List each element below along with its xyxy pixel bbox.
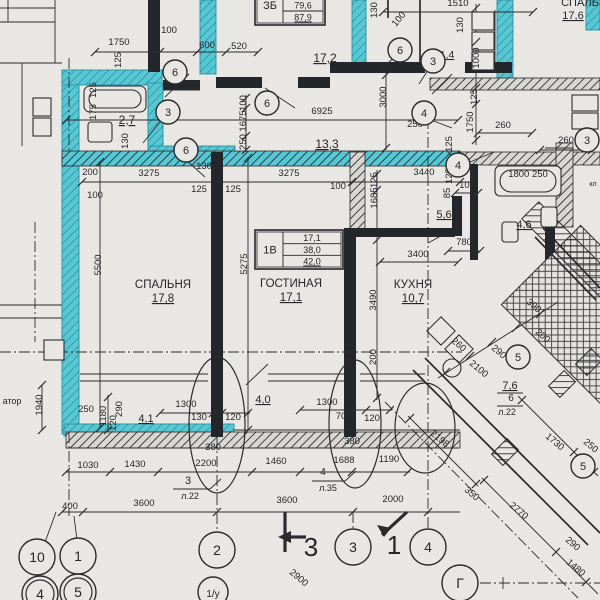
flat-stamp-1v-value: 17,1	[303, 233, 321, 243]
dimension-label: 175	[88, 104, 99, 120]
dimension-label: 1800 250	[508, 169, 548, 180]
wall-teal-hatch	[352, 0, 366, 72]
floor-plan-canvas: СПАЛЬНЯ17,8ГОСТИНАЯ17,1КУХНЯ10,717,213,3…	[0, 0, 600, 600]
dimension-label: 100	[390, 10, 409, 29]
wall-dark	[211, 152, 223, 437]
stair-count: 6	[508, 393, 514, 404]
axis-bubble-label: Г	[456, 575, 464, 591]
wall-hatched	[66, 432, 460, 448]
dimension-label: 70	[336, 411, 347, 422]
axis-bubble-label: 3	[430, 56, 436, 68]
dimension-label: 2200	[195, 458, 216, 469]
dimension-label: 1688	[333, 455, 354, 466]
wall-dark	[216, 77, 262, 88]
dimension-label: 3600	[276, 495, 297, 506]
dimension-label: 100	[161, 25, 177, 36]
wall-dark	[355, 228, 455, 237]
dimension-label: 3000	[378, 86, 389, 107]
dim-tick	[512, 324, 520, 332]
dimension-label: 1300	[316, 397, 337, 408]
room-area-bath: 2,7	[119, 113, 136, 127]
dimension-label: 6925	[311, 106, 332, 117]
dimension-label: 1750	[465, 111, 476, 132]
floor-plan-page: СПАЛЬНЯ17,8ГОСТИНАЯ17,1КУХНЯ10,717,213,3…	[0, 0, 600, 600]
dimension-label: 250	[581, 437, 600, 456]
axis-bubble-label: 1	[74, 548, 82, 564]
node-ref: л.22	[181, 491, 199, 501]
dimension-label: 120	[108, 415, 119, 431]
flat-stamp-1v-value: 38,0	[303, 245, 321, 255]
dimension-label: 3490	[368, 289, 379, 310]
dimension-label: 250	[78, 404, 94, 415]
axis-bubble-label: 4	[455, 160, 461, 172]
dimension-label: 3600	[133, 498, 154, 509]
room-label-bedroom2: СПАЛЬНЯ	[561, 0, 600, 9]
axis-bubble-label: 2	[213, 542, 221, 558]
dimension-label: 3275	[138, 168, 159, 179]
dimension-label: 380	[344, 436, 360, 447]
dimension-label: 1480	[564, 557, 587, 579]
shaft-icon	[44, 340, 64, 360]
dimension-label: 600	[199, 40, 215, 51]
wall-dark	[148, 0, 160, 72]
axis-bubble-label: 5	[515, 352, 521, 364]
dimension-label: 125	[225, 184, 241, 195]
axis-bubble-label: 10	[29, 549, 45, 565]
wall-dark	[298, 77, 330, 88]
room-area-bedroom2: 17,6	[562, 10, 583, 22]
section-label: 1	[387, 530, 401, 560]
dimension-label: 780	[456, 237, 472, 248]
dimension-label: 1750	[108, 37, 129, 48]
stair-area: 7,6	[502, 380, 517, 392]
dimension-label: 1190	[379, 454, 399, 465]
flat-stamp-3b-value: 87,9	[294, 13, 312, 23]
section-label: 3	[304, 532, 318, 562]
axis-bubble-label: 5	[580, 461, 586, 473]
wardrobe-icon	[572, 113, 598, 129]
dimension-label: 520	[231, 41, 247, 52]
dimension-label: 1300	[175, 399, 196, 410]
axis-bubble-label: 3	[349, 539, 357, 555]
dimension-label: 125	[113, 52, 124, 68]
dimension-label: 1460	[265, 456, 286, 467]
dimension-label: 125	[469, 89, 480, 105]
room-area-hall: 13,3	[315, 137, 339, 151]
flat-stamp-1v-value: 42,0	[303, 257, 321, 267]
dimension-label: 1675	[238, 110, 249, 131]
dimension-label: 1510	[447, 0, 468, 9]
room-area-hall2: 5,6	[436, 209, 451, 221]
wall-teal-hatch	[62, 70, 162, 85]
dimension-label: 130	[196, 161, 212, 172]
dimension-label: 350	[462, 485, 481, 504]
drawing-line	[210, 479, 221, 489]
axis-bubble-label: 6	[397, 45, 403, 57]
axis-bubble-label: 1/у	[206, 589, 219, 600]
dimension-label: 400	[62, 501, 78, 512]
dimension-label: 2000	[382, 494, 403, 505]
dimension-label: 200	[82, 167, 98, 178]
axis-bubble-label: 6	[183, 145, 189, 157]
wall-teal-hatch	[62, 72, 79, 434]
dimension-label: 125	[444, 136, 455, 152]
revision-ellipse	[395, 383, 455, 473]
drawing-line	[345, 471, 356, 481]
wardrobe-icon	[33, 98, 51, 116]
flat-stamp-3b-value: 79,6	[294, 1, 312, 11]
clipped-word: атор	[3, 396, 22, 406]
drawing-line	[431, 120, 452, 128]
dimension-label: 100	[238, 95, 249, 111]
drawing-line	[74, 516, 77, 540]
dimension-label: 1940	[34, 394, 45, 415]
shelf-icon	[472, 32, 494, 50]
dimension-label: 2770	[507, 500, 530, 522]
wall-hatched	[430, 78, 600, 90]
axis-bubble-label: 4	[424, 539, 432, 555]
dimension-label: 85	[442, 188, 453, 199]
wall-dark	[344, 228, 356, 437]
dimension-label: 380	[205, 442, 221, 453]
dimension-label: 1430	[124, 459, 145, 470]
dimension-label: 1000	[471, 47, 482, 68]
room-area-kitchen: 10,7	[402, 293, 424, 305]
node-ref: 3	[185, 475, 191, 487]
dimension-label: 100	[87, 190, 103, 201]
sink-icon	[541, 207, 557, 227]
clipped-word: кл	[589, 181, 596, 188]
wardrobe-icon	[33, 118, 51, 136]
flat-stamp-3b-type: ЗБ	[263, 0, 277, 12]
dimension-label: 130	[455, 17, 466, 33]
dimension-label: 125	[191, 184, 207, 195]
wall-teal-hatch	[200, 0, 216, 74]
wall-hatched	[350, 152, 365, 232]
dimension-label: 120	[364, 413, 380, 424]
room-area-living: 17,1	[280, 292, 302, 304]
dimension-label: 290	[563, 535, 582, 554]
dimension-label: 2100	[467, 358, 490, 380]
dimension-label: 100	[459, 180, 475, 191]
dimension-label: 125	[88, 82, 99, 98]
sink-icon	[443, 359, 461, 377]
dimension-label: 260	[495, 120, 511, 131]
room-area-bath2: 4,6	[516, 219, 531, 231]
room-label-bedroom: СПАЛЬНЯ	[135, 279, 191, 291]
axis-bubble-label: 4	[36, 586, 44, 600]
dimension-label: 3440	[413, 167, 434, 178]
axis-bubble-label: 4	[421, 108, 427, 120]
dimension-label: 3275	[278, 168, 299, 179]
dimension-label: 100	[330, 181, 346, 192]
dimension-label: 1730	[543, 431, 566, 453]
dimension-label: 250	[238, 134, 249, 150]
node-ref: л.35	[319, 483, 337, 493]
dimension-label: 120	[225, 412, 241, 423]
drawing-line	[408, 416, 478, 486]
dimension-label: 130	[191, 412, 207, 423]
axis-bubble-label: 3	[165, 107, 171, 119]
stair-ref: л.22	[498, 407, 516, 417]
dimension-label: 2900	[287, 567, 310, 589]
node-ref: 4	[320, 467, 326, 478]
room-area-bedroom: 17,8	[152, 293, 174, 305]
dimension-label: 290	[114, 401, 125, 417]
wall-dark	[452, 196, 462, 236]
dimension-label: 1030	[77, 460, 98, 471]
dimension-label: 200	[368, 349, 379, 365]
drawing-line	[246, 364, 268, 385]
dimension-label: 1685	[369, 187, 380, 208]
dimension-label: 130	[369, 2, 380, 18]
flat-stamp-1v-type: 1В	[263, 245, 276, 257]
axis-bubble-label: 6	[264, 98, 270, 110]
shelf-icon	[472, 12, 494, 30]
drawing-line	[44, 512, 56, 545]
wardrobe-icon	[572, 95, 598, 111]
room-label-living: ГОСТИНАЯ	[260, 278, 322, 290]
dimension-label: 290	[489, 343, 508, 362]
axis-bubble-label: 6	[172, 67, 178, 79]
room-label-kitchen: КУХНЯ	[394, 279, 432, 291]
wall-dark	[330, 62, 425, 73]
dimension-label: 260	[558, 135, 574, 146]
dimension-label: 130	[120, 133, 131, 149]
room-area: 17,2	[313, 51, 337, 65]
room-area-balcony1: 4,1	[138, 413, 153, 425]
room-area-balcony2: 4,0	[255, 394, 270, 406]
axis-bubble-label: 3	[584, 135, 590, 147]
sink-icon	[88, 122, 112, 142]
dimension-label: 125	[369, 172, 380, 188]
axis-bubble-label: 5	[74, 584, 82, 600]
dimension-label: 5275	[239, 253, 250, 274]
wall-hatched	[62, 151, 460, 166]
dimension-label: 5500	[93, 254, 104, 275]
dimension-label: 3400	[407, 249, 428, 260]
